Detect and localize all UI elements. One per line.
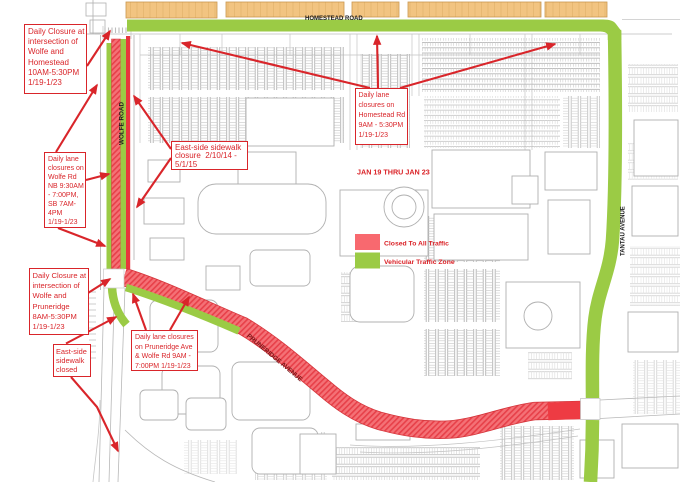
svg-text:WOLFE ROAD: WOLFE ROAD <box>119 102 126 145</box>
svg-text:TANTAU AVENUE: TANTAU AVENUE <box>621 206 627 256</box>
svg-text:Vehicular Traffic Zone: Vehicular Traffic Zone <box>384 259 455 266</box>
svg-text:JAN 19 THRU JAN 23: JAN 19 THRU JAN 23 <box>357 168 430 177</box>
svg-text:Closed To All Traffic: Closed To All Traffic <box>384 241 449 248</box>
svg-text:HOMESTEAD ROAD: HOMESTEAD ROAD <box>305 16 363 22</box>
